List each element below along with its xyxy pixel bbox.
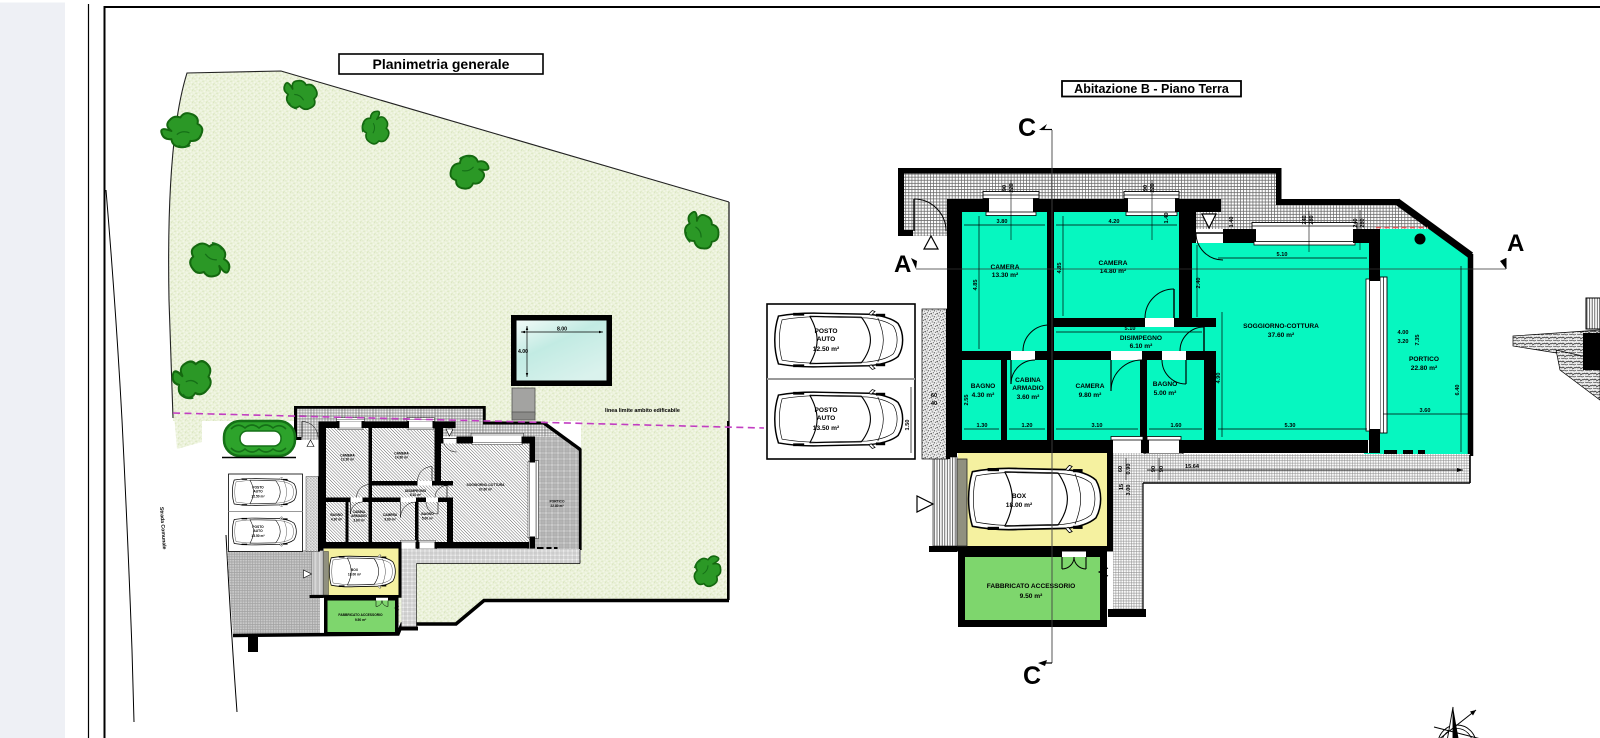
svg-text:Planimetria generale: Planimetria generale	[373, 56, 510, 72]
svg-text:15.64: 15.64	[1185, 464, 1200, 470]
svg-text:5.30: 5.30	[1285, 423, 1296, 429]
svg-text:3.60 m²: 3.60 m²	[1017, 394, 1041, 401]
svg-text:1.30: 1.30	[977, 423, 988, 429]
svg-text:9.50 m²: 9.50 m²	[1020, 593, 1044, 600]
svg-text:240: 240	[1353, 218, 1359, 227]
svg-text:5.10: 5.10	[1125, 326, 1136, 332]
svg-text:3.60: 3.60	[1420, 408, 1431, 414]
svg-text:60: 60	[931, 393, 937, 399]
svg-text:4.85: 4.85	[973, 280, 979, 291]
svg-text:4.00: 4.00	[1398, 330, 1409, 336]
svg-text:DISIMPEGNO: DISIMPEGNO	[1120, 335, 1162, 342]
svg-text:37.60 m²: 37.60 m²	[1268, 332, 1295, 339]
svg-text:POSTO: POSTO	[815, 328, 838, 335]
svg-text:1.50: 1.50	[905, 420, 911, 431]
svg-text:Abitazione B - Piano Terra: Abitazione B - Piano Terra	[1074, 82, 1230, 96]
svg-text:5.00 m²: 5.00 m²	[1154, 390, 1178, 397]
svg-text:CABINA: CABINA	[1015, 377, 1041, 384]
svg-text:40: 40	[931, 401, 937, 407]
svg-text:4.30 m²: 4.30 m²	[972, 392, 996, 399]
svg-text:BAGNO: BAGNO	[971, 383, 996, 390]
svg-text:22.80 m²: 22.80 m²	[1411, 365, 1438, 372]
svg-text:POSTO: POSTO	[815, 407, 838, 414]
svg-text:6.40: 6.40	[1455, 385, 1461, 396]
svg-text:4.90: 4.90	[1216, 373, 1222, 384]
svg-text:6.10 m²: 6.10 m²	[1130, 343, 1154, 350]
svg-text:1.40: 1.40	[1229, 217, 1235, 228]
svg-text:SOGGIORNO-COTTURA: SOGGIORNO-COTTURA	[1243, 323, 1319, 330]
svg-text:0.90: 0.90	[1126, 464, 1132, 475]
svg-text:BAGNO: BAGNO	[1153, 381, 1178, 388]
svg-text:280: 280	[1309, 215, 1315, 224]
svg-text:PORTICO: PORTICO	[1409, 356, 1439, 363]
svg-text:220: 220	[1009, 183, 1015, 192]
svg-text:A: A	[894, 251, 911, 278]
svg-text:90: 90	[1143, 185, 1149, 191]
svg-text:5.10: 5.10	[1277, 252, 1288, 258]
svg-text:BOX: BOX	[1012, 493, 1027, 500]
svg-text:90: 90	[1151, 466, 1157, 472]
svg-text:linea limite ambito edificabil: linea limite ambito edificabile	[605, 408, 680, 414]
svg-text:Strada Comunale: Strada Comunale	[158, 507, 167, 550]
svg-text:18.00 m²: 18.00 m²	[1006, 502, 1033, 509]
svg-text:3.80: 3.80	[997, 219, 1008, 225]
svg-text:ARMADIO: ARMADIO	[1012, 385, 1044, 392]
svg-text:90: 90	[1002, 185, 1008, 191]
svg-text:60: 60	[1118, 466, 1124, 472]
svg-text:13.50 m²: 13.50 m²	[813, 425, 840, 432]
svg-text:1.40: 1.40	[1164, 213, 1170, 224]
svg-text:FABBRICATO ACCESSORIO: FABBRICATO ACCESSORIO	[987, 583, 1076, 590]
svg-text:AUTO: AUTO	[817, 415, 836, 422]
svg-text:C: C	[1018, 114, 1036, 142]
svg-text:1.60: 1.60	[1171, 423, 1182, 429]
svg-text:C: C	[1023, 662, 1041, 690]
svg-text:2.55: 2.55	[964, 395, 970, 406]
svg-text:3.10: 3.10	[1092, 423, 1103, 429]
svg-text:13.30 m²: 13.30 m²	[992, 272, 1019, 279]
svg-text:15: 15	[1119, 484, 1125, 490]
svg-text:3.20: 3.20	[1398, 339, 1409, 345]
svg-text:AUTO: AUTO	[817, 336, 836, 343]
svg-text:CAMERA: CAMERA	[1076, 383, 1105, 390]
svg-text:CAMERA: CAMERA	[991, 264, 1020, 271]
svg-text:220: 220	[1150, 183, 1156, 192]
svg-text:90: 90	[1159, 466, 1165, 472]
svg-text:7.35: 7.35	[1415, 335, 1421, 346]
svg-text:240: 240	[1302, 215, 1308, 224]
svg-text:4.20: 4.20	[1109, 219, 1120, 225]
svg-text:A: A	[1507, 230, 1524, 257]
svg-text:280: 280	[1360, 218, 1366, 227]
svg-text:9.80 m²: 9.80 m²	[1079, 392, 1103, 399]
svg-text:3.00: 3.00	[1126, 485, 1132, 496]
svg-text:CAMERA: CAMERA	[1099, 260, 1128, 267]
svg-text:4.85: 4.85	[1057, 263, 1063, 274]
svg-text:1.20: 1.20	[1022, 423, 1033, 429]
svg-text:12.50 m²: 12.50 m²	[813, 346, 840, 353]
svg-text:8.00: 8.00	[557, 327, 567, 333]
svg-text:4.00: 4.00	[518, 349, 528, 355]
